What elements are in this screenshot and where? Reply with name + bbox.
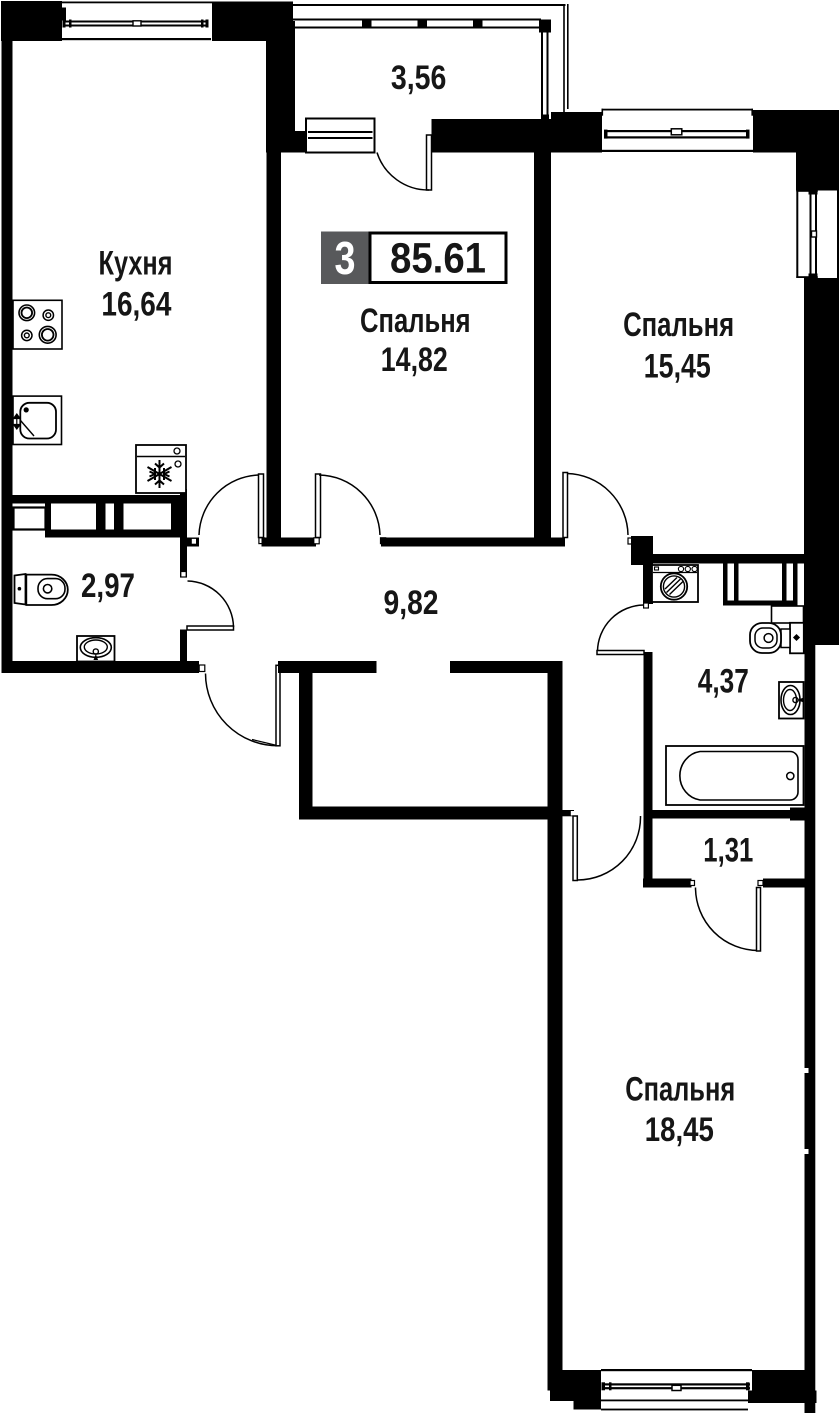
svg-text:Спальня: Спальня [623,306,734,344]
svg-text:Спальня: Спальня [625,1071,735,1109]
svg-text:Кухня: Кухня [99,245,173,283]
svg-text:2,97: 2,97 [81,567,135,605]
svg-text:3: 3 [335,232,356,284]
svg-text:85.61: 85.61 [390,235,486,283]
svg-text:16,64: 16,64 [101,286,171,324]
svg-text:1,31: 1,31 [703,832,753,870]
svg-text:14,82: 14,82 [381,341,448,379]
svg-text:3,56: 3,56 [391,59,447,97]
svg-text:15,45: 15,45 [644,348,711,386]
svg-text:18,45: 18,45 [645,1111,714,1149]
svg-text:9,82: 9,82 [384,584,439,622]
svg-text:Спальня: Спальня [360,302,471,340]
svg-text:4,37: 4,37 [698,663,749,701]
